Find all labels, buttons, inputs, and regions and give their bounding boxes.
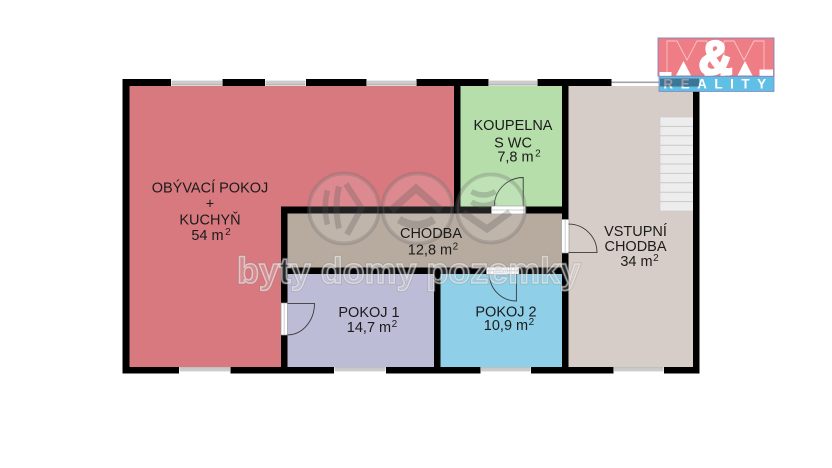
svg-text:+: + [206, 197, 214, 213]
svg-text:VSTUPNÍ: VSTUPNÍ [604, 223, 667, 240]
svg-text:OBÝVACÍ POKOJ: OBÝVACÍ POKOJ [152, 180, 269, 197]
svg-text:KUCHYŇ: KUCHYŇ [179, 212, 240, 229]
svg-text:14,7 m2: 14,7 m2 [347, 319, 398, 336]
svg-text:KOUPELNA: KOUPELNA [474, 118, 553, 134]
svg-text:10,9 m2: 10,9 m2 [484, 317, 535, 334]
svg-text:POKOJ 1: POKOJ 1 [338, 305, 399, 321]
svg-text:12,8 m2: 12,8 m2 [408, 242, 459, 259]
svg-text:CHODBA: CHODBA [400, 226, 462, 242]
